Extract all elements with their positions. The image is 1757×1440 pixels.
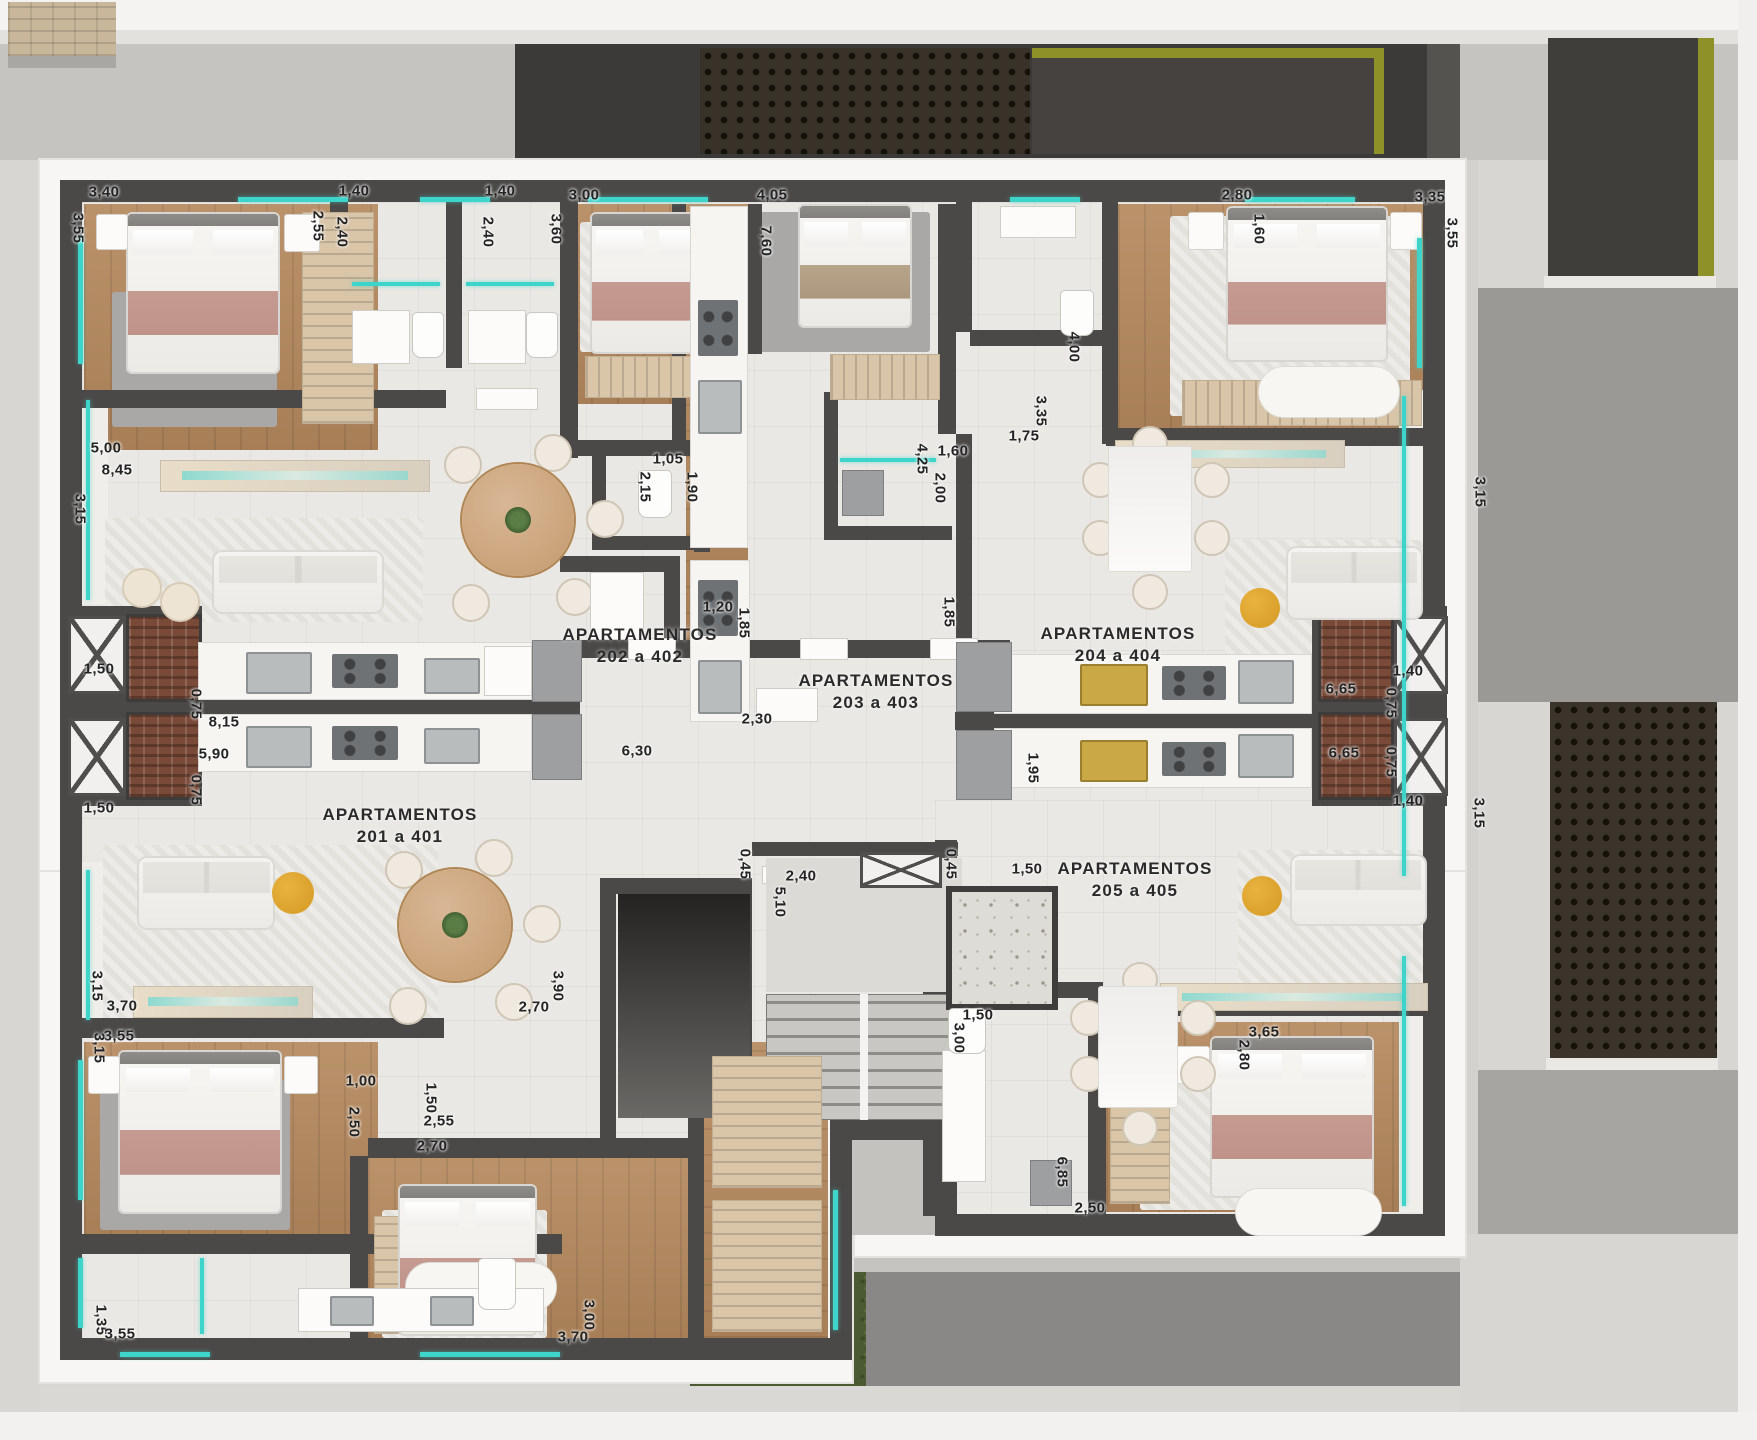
apartment-label-range: 201 a 401 bbox=[322, 826, 477, 848]
dimension-label: 3,40 bbox=[89, 184, 120, 201]
dimension-label: 6,30 bbox=[622, 743, 653, 760]
dimension-label: 1,85 bbox=[941, 597, 958, 628]
dimension-label: 0,45 bbox=[737, 849, 754, 880]
dimension-label: 3,35 bbox=[1033, 396, 1050, 427]
dimension-label: 3,70 bbox=[558, 1329, 589, 1346]
dimension-label: 2,55 bbox=[424, 1113, 455, 1130]
dimension-label: 2,80 bbox=[1222, 187, 1253, 204]
apartment-label-title: APARTAMENTOS bbox=[1040, 623, 1195, 645]
dimension-label: 3,15 bbox=[1472, 477, 1489, 508]
dimension-label: 8,15 bbox=[209, 714, 240, 731]
apartment-label-range: 205 a 405 bbox=[1057, 880, 1212, 902]
apartment-label: APARTAMENTOS204 a 404 bbox=[1040, 623, 1195, 667]
apartment-label-title: APARTAMENTOS bbox=[322, 804, 477, 826]
apartment-label: APARTAMENTOS205 a 405 bbox=[1057, 858, 1212, 902]
dimension-label: 3,55 bbox=[104, 1028, 135, 1045]
dimension-label: 0,75 bbox=[188, 775, 205, 806]
floor-plan-canvas: 3,403,552,551,402,401,402,403,603,004,05… bbox=[0, 0, 1757, 1440]
dimension-label: 3,15 bbox=[72, 494, 89, 525]
dimension-label: 6,65 bbox=[1326, 681, 1357, 698]
dimension-label: 0,75 bbox=[188, 689, 205, 720]
dimension-label: 2,40 bbox=[334, 217, 351, 248]
apartment-label: APARTAMENTOS201 a 401 bbox=[322, 804, 477, 848]
dimension-label: 1,50 bbox=[84, 661, 115, 678]
dimension-label: 3,00 bbox=[569, 187, 600, 204]
apartment-label-range: 203 a 403 bbox=[798, 692, 953, 714]
dimension-label: 2,40 bbox=[786, 868, 817, 885]
dimension-label: 1,50 bbox=[1012, 861, 1043, 878]
dimension-label: 2,50 bbox=[1075, 1200, 1106, 1217]
dimension-label: 1,40 bbox=[1393, 663, 1424, 680]
dimension-label: 2,70 bbox=[417, 1138, 448, 1155]
dimension-label: 2,50 bbox=[346, 1107, 363, 1138]
dimension-label: 2,00 bbox=[932, 473, 949, 504]
dimension-label: 1,60 bbox=[938, 443, 969, 460]
dimension-label: 3,70 bbox=[107, 998, 138, 1015]
dimension-label: 0,75 bbox=[1383, 747, 1400, 778]
dimension-label: 8,45 bbox=[102, 462, 133, 479]
dimension-label: 1,40 bbox=[339, 183, 370, 200]
dimension-label: 2,30 bbox=[742, 711, 773, 728]
dimension-label: 5,00 bbox=[91, 440, 122, 457]
dimension-label: 1,60 bbox=[1251, 214, 1268, 245]
dimension-label: 2,40 bbox=[480, 217, 497, 248]
apartment-label-title: APARTAMENTOS bbox=[562, 624, 717, 646]
apartment-label-title: APARTAMENTOS bbox=[1057, 858, 1212, 880]
dimension-label: 1,85 bbox=[736, 608, 753, 639]
dimension-label: 5,90 bbox=[199, 746, 230, 763]
dimension-label: 1,95 bbox=[1025, 753, 1042, 784]
dimension-label: 7,60 bbox=[758, 226, 775, 257]
dimension-label: 0,75 bbox=[1383, 688, 1400, 719]
dimension-label: 3,00 bbox=[581, 1300, 598, 1331]
dimension-label: 6,85 bbox=[1054, 1157, 1071, 1188]
apartment-label-title: APARTAMENTOS bbox=[798, 670, 953, 692]
apartment-label-range: 204 a 404 bbox=[1040, 645, 1195, 667]
dimension-label: 4,25 bbox=[914, 444, 931, 475]
dimension-label: 3,55 bbox=[70, 213, 87, 244]
dimension-label: 3,60 bbox=[548, 214, 565, 245]
dimension-label: 3,55 bbox=[105, 1326, 136, 1343]
dimension-label: 1,50 bbox=[423, 1083, 440, 1114]
dimension-label: 1,50 bbox=[963, 1007, 994, 1024]
apartment-label: APARTAMENTOS202 a 402 bbox=[562, 624, 717, 668]
dimension-label: 1,05 bbox=[653, 451, 684, 468]
dimension-label: 2,55 bbox=[310, 211, 327, 242]
dimension-label: 3,55 bbox=[1444, 218, 1461, 249]
annotation-layer: 3,403,552,551,402,401,402,403,603,004,05… bbox=[0, 0, 1757, 1440]
dimension-label: 1,50 bbox=[84, 800, 115, 817]
dimension-label: 3,15 bbox=[89, 971, 106, 1002]
dimension-label: 1,40 bbox=[485, 183, 516, 200]
dimension-label: 1,20 bbox=[703, 599, 734, 616]
dimension-label: 3,65 bbox=[1249, 1024, 1280, 1041]
apartment-label-range: 202 a 402 bbox=[562, 646, 717, 668]
dimension-label: 4,05 bbox=[757, 187, 788, 204]
dimension-label: 1,40 bbox=[1393, 793, 1424, 810]
dimension-label: 2,70 bbox=[519, 999, 550, 1016]
dimension-label: 3,90 bbox=[550, 971, 567, 1002]
dimension-label: 3,35 bbox=[1415, 189, 1446, 206]
dimension-label: 0,45 bbox=[943, 849, 960, 880]
dimension-label: 1,00 bbox=[346, 1073, 377, 1090]
dimension-label: 3,15 bbox=[91, 1033, 108, 1064]
dimension-label: 5,10 bbox=[772, 887, 789, 918]
dimension-label: 3,15 bbox=[1471, 798, 1488, 829]
dimension-label: 2,15 bbox=[637, 472, 654, 503]
dimension-label: 4,00 bbox=[1066, 332, 1083, 363]
dimension-label: 1,75 bbox=[1009, 428, 1040, 445]
dimension-label: 6,65 bbox=[1329, 745, 1360, 762]
dimension-label: 1,90 bbox=[684, 472, 701, 503]
apartment-label: APARTAMENTOS203 a 403 bbox=[798, 670, 953, 714]
dimension-label: 2,80 bbox=[1236, 1040, 1253, 1071]
dimension-label: 3,00 bbox=[951, 1023, 968, 1054]
